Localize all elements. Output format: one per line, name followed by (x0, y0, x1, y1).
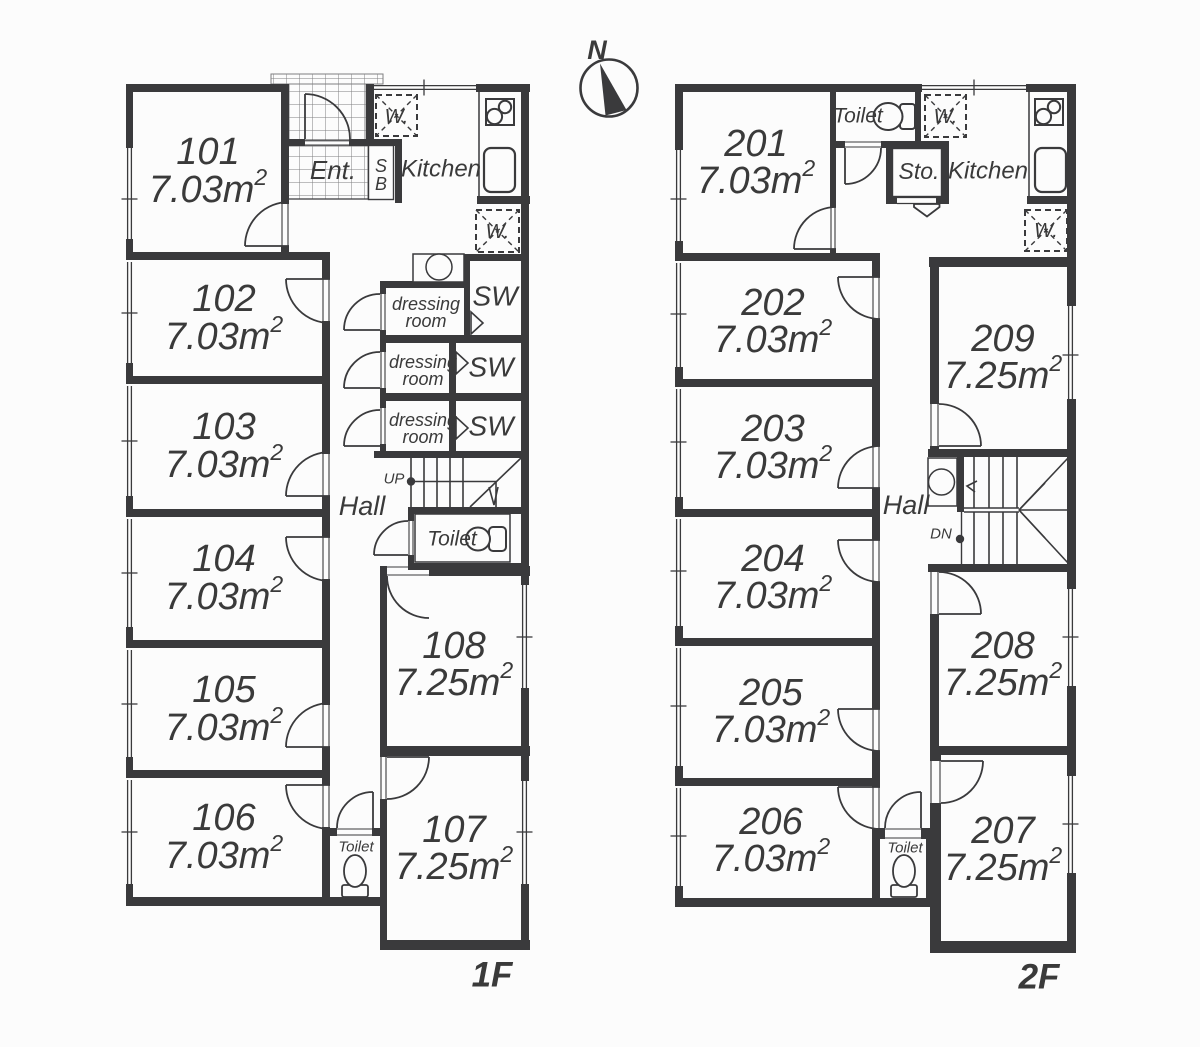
svg-text:203: 203 (740, 408, 804, 450)
svg-text:Hall: Hall (339, 491, 387, 521)
svg-text:108: 108 (422, 625, 485, 667)
svg-text:204: 204 (740, 538, 804, 580)
svg-text:Toilet: Toilet (338, 839, 374, 856)
svg-text:1F: 1F (472, 956, 514, 995)
svg-text:106: 106 (192, 797, 256, 839)
svg-text:S: S (375, 156, 387, 176)
svg-text:107: 107 (422, 809, 487, 851)
svg-text:201: 201 (723, 123, 787, 165)
svg-text:7.03m2: 7.03m2 (712, 833, 831, 880)
svg-text:207: 207 (970, 810, 1036, 852)
svg-text:7.25m2: 7.25m2 (944, 842, 1063, 889)
svg-text:7.03m2: 7.03m2 (149, 164, 268, 211)
svg-text:102: 102 (192, 278, 255, 320)
svg-text:7.03m2: 7.03m2 (714, 314, 833, 361)
svg-text:103: 103 (192, 406, 255, 448)
svg-text:7.03m2: 7.03m2 (165, 311, 284, 358)
svg-text:2F: 2F (1018, 958, 1061, 997)
svg-text:SW: SW (468, 352, 516, 383)
svg-text:B: B (375, 174, 387, 194)
svg-text:7.03m2: 7.03m2 (165, 702, 284, 749)
svg-text:Toilet: Toilet (833, 105, 884, 128)
svg-text:202: 202 (740, 282, 804, 324)
svg-text:105: 105 (192, 669, 256, 711)
svg-text:7.03m2: 7.03m2 (165, 830, 284, 877)
svg-text:Ent.: Ent. (310, 155, 356, 185)
svg-text:W.: W. (1034, 220, 1058, 242)
svg-text:N: N (587, 35, 607, 65)
svg-text:208: 208 (970, 625, 1034, 667)
svg-text:room: room (405, 311, 446, 331)
svg-text:W.: W. (486, 221, 510, 243)
svg-text:7.25m2: 7.25m2 (944, 657, 1063, 704)
svg-text:7.03m2: 7.03m2 (712, 704, 831, 751)
svg-text:7.25m2: 7.25m2 (395, 841, 514, 888)
svg-text:Sto.: Sto. (899, 158, 940, 184)
svg-text:7.03m2: 7.03m2 (714, 570, 833, 617)
svg-text:7.03m2: 7.03m2 (165, 439, 284, 486)
svg-text:SW: SW (472, 281, 520, 312)
svg-text:7.03m2: 7.03m2 (165, 571, 284, 618)
svg-text:209: 209 (970, 318, 1034, 360)
svg-text:W.: W. (385, 106, 409, 128)
svg-text:SW: SW (468, 411, 516, 442)
svg-text:7.25m2: 7.25m2 (395, 657, 514, 704)
svg-text:Toilet: Toilet (427, 528, 478, 551)
svg-text:7.03m2: 7.03m2 (697, 155, 816, 202)
svg-text:Kitchen: Kitchen (401, 156, 481, 183)
svg-text:W.: W. (934, 106, 958, 128)
svg-text:room: room (402, 369, 443, 389)
svg-text:DN: DN (930, 526, 952, 543)
svg-text:104: 104 (192, 538, 255, 580)
svg-text:101: 101 (176, 131, 239, 173)
svg-text:UP: UP (384, 471, 405, 488)
svg-text:Toilet: Toilet (887, 840, 923, 857)
svg-text:room: room (402, 427, 443, 447)
svg-text:7.25m2: 7.25m2 (944, 350, 1063, 397)
svg-text:Hall: Hall (883, 490, 931, 520)
svg-text:206: 206 (738, 801, 803, 843)
svg-text:Kitchen: Kitchen (948, 158, 1028, 185)
svg-text:205: 205 (738, 672, 803, 714)
svg-text:7.03m2: 7.03m2 (714, 440, 833, 487)
